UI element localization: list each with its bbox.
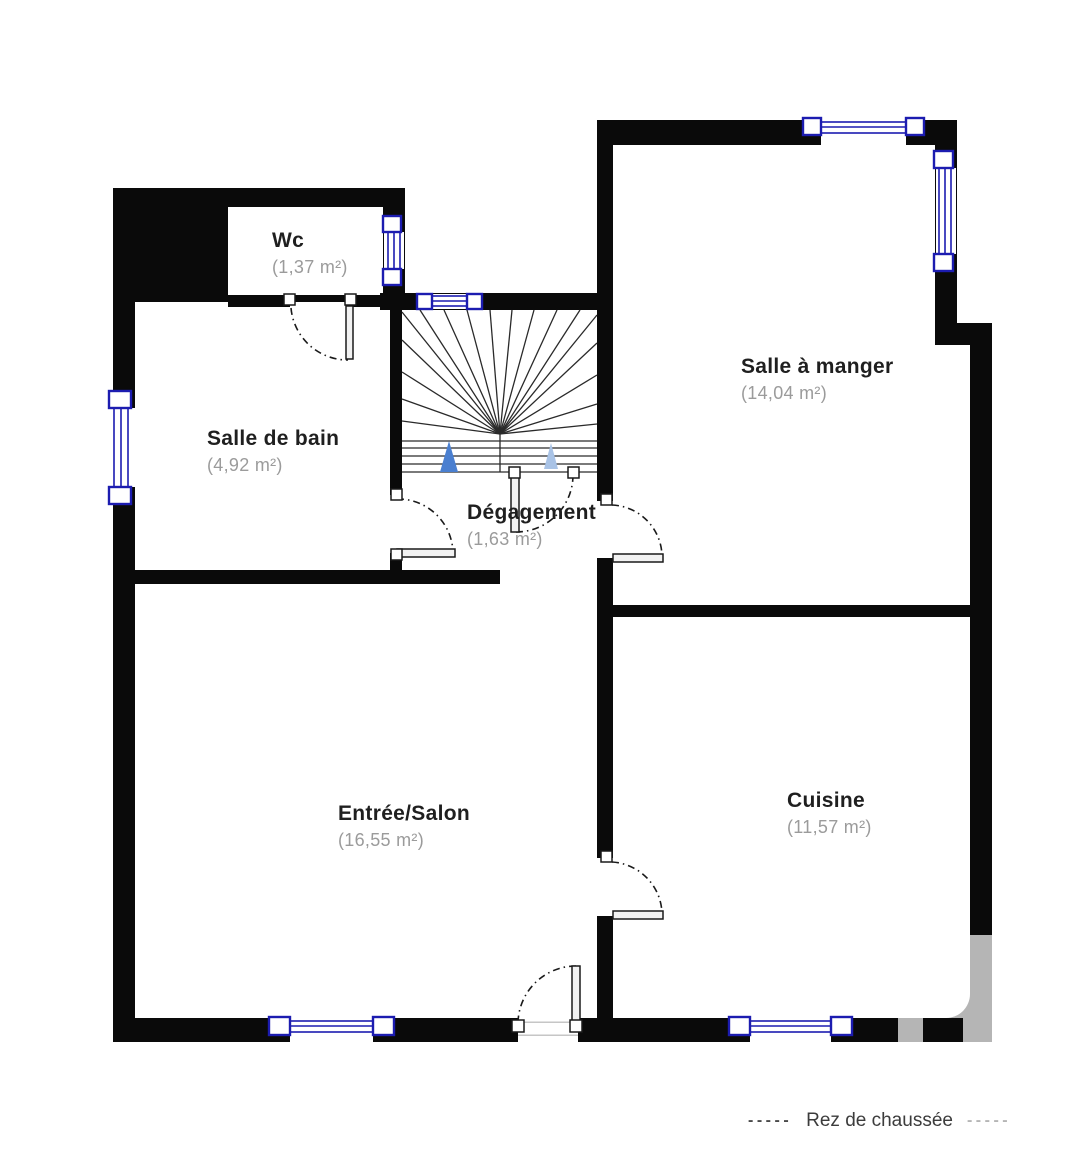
stair-window [417,294,482,309]
room-area-wc: (1,37 m²) [272,258,348,276]
dining-right-window [934,151,956,271]
room-label-wc: Wc (1,37 m²) [272,230,348,276]
room-area-cuisine: (11,57 m²) [787,818,872,836]
room-name-salle-de-bain: Salle de bain [207,428,339,449]
room-label-cuisine: Cuisine (11,57 m²) [787,790,872,836]
floor-legend: ----- Rez de chaussée ----- [748,1110,1011,1132]
room-area-salle-a-manger: (14,04 m²) [741,384,893,402]
wall-wc-bottom-left [228,295,290,307]
opening-entry [518,1016,578,1044]
wc-window [383,216,404,285]
wall-right-step [935,323,992,345]
staircase [402,310,597,472]
wall-stair-top [380,293,613,310]
room-label-salle-a-manger: Salle à manger (14,04 m²) [741,356,893,402]
room-area-entree-salon: (16,55 m²) [338,831,470,849]
legend-left-dashes: ----- [748,1112,792,1130]
room-name-cuisine: Cuisine [787,790,872,811]
legend-label: Rez de chaussée [806,1110,953,1132]
wall-left [113,188,135,1042]
room-name-wc: Wc [272,230,348,251]
room-name-entree-salon: Entrée/Salon [338,803,470,824]
opening-hall-dining [597,501,613,558]
wc-door [284,294,356,360]
legend-right-dashes: ----- [967,1112,1011,1130]
room-name-salle-a-manger: Salle à manger [741,356,893,377]
room-area-degagement: (1,63 m²) [467,530,596,548]
room-label-salle-de-bain: Salle de bain (4,92 m²) [207,428,339,474]
room-name-degagement: Dégagement [467,502,596,523]
opening-kitchen [597,858,613,916]
wall-dining-kitchen [613,605,992,617]
floor-plan-canvas: Wc (1,37 m²) Salle de bain (4,92 m²) Sal… [0,0,1090,1166]
opening-bathroom-hall [390,495,402,553]
floor-plan-drawing [0,0,1090,1166]
room-label-entree-salon: Entrée/Salon (16,55 m²) [338,803,470,849]
room-label-degagement: Dégagement (1,63 m²) [467,502,596,548]
dining-top-window [803,118,924,145]
room-area-salle-de-bain: (4,92 m²) [207,456,339,474]
wall-bathroom-bottom [113,570,500,584]
walls [113,120,992,1042]
bathroom-window [109,391,136,504]
